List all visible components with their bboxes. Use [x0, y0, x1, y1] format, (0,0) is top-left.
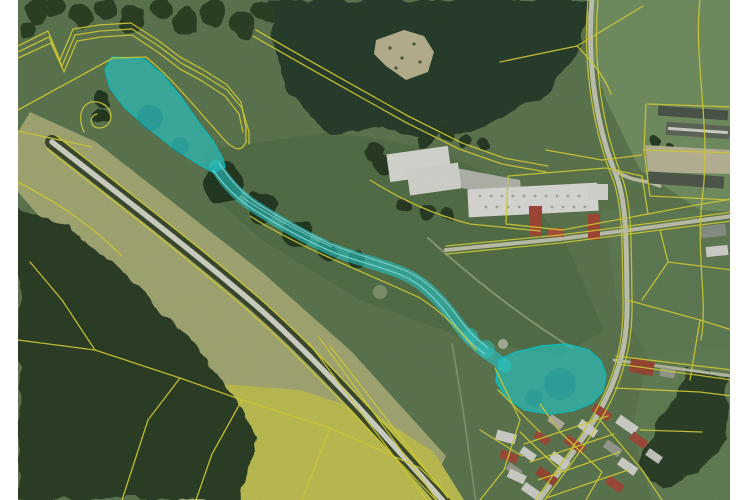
frame-margin-left: [0, 0, 18, 500]
photo-grain: [18, 0, 730, 500]
frame-margin-right: [730, 0, 750, 500]
listing-photo: [0, 0, 750, 500]
aerial-cadastral-map: [0, 0, 750, 500]
